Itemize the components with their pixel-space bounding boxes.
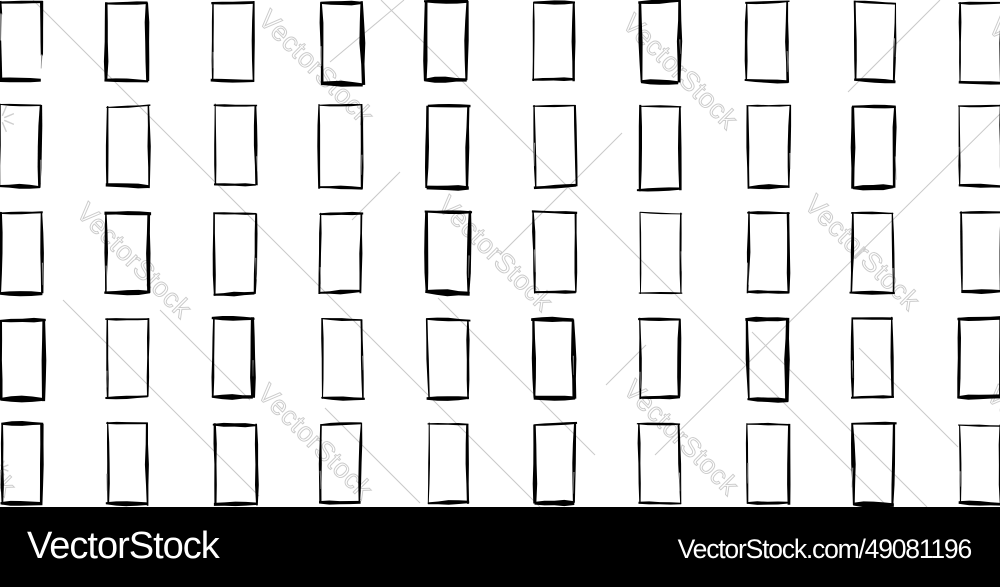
svg-text:VectorStock.com/49081196: VectorStock.com/49081196 — [678, 534, 972, 564]
svg-text:VectorStock: VectorStock — [27, 525, 221, 567]
